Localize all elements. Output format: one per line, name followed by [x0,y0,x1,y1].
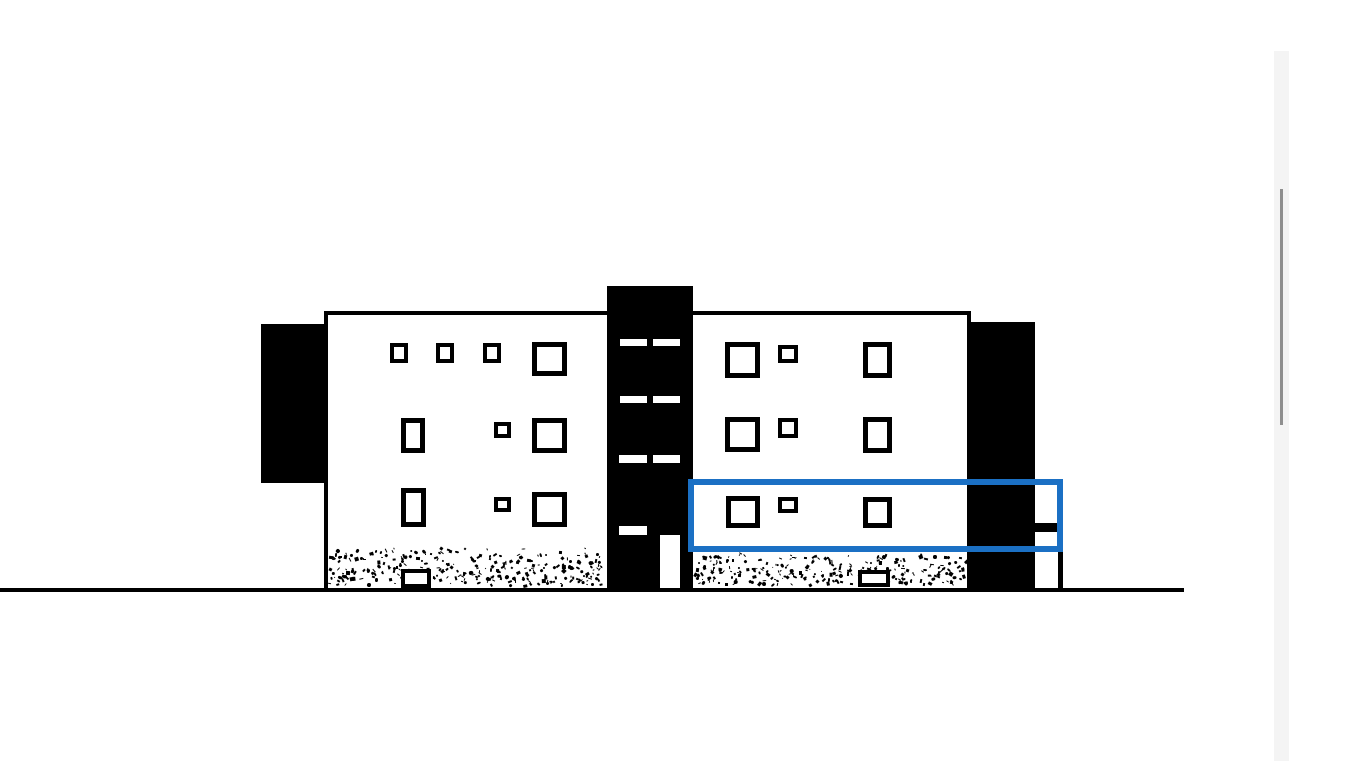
stipple-dot [488,558,490,560]
stipple-dot [708,581,710,583]
window [483,343,501,363]
stipple-dot [869,561,872,564]
stipple-dot [584,547,587,550]
window [778,345,798,363]
stipple-dot [430,552,432,555]
stipple-dot [743,554,746,557]
stipple-dot [709,555,712,558]
stipple-dot [591,583,594,586]
stipple-dot [389,578,393,581]
stipple-dot [762,582,766,586]
stipple-dot [440,551,443,554]
stipple-dot [696,567,699,571]
stipple-dot [561,556,565,560]
stipple-dot [490,564,494,568]
stipple-dot [814,573,816,575]
stipple-dot [464,581,467,584]
stipple-dot [355,557,359,561]
stipple-dot [900,560,902,562]
stipple-dot [598,556,600,558]
stipple-dot [436,575,439,578]
stipple-dot [392,550,395,553]
stipple-dot [478,554,481,557]
stipple-dot [446,576,449,579]
stipple-dot [485,567,486,569]
window [401,569,431,588]
stipple-dot [927,575,931,577]
stipple-dot [409,554,413,558]
stipple-dot [906,569,910,573]
stipple-dot [894,560,898,564]
stipple-dot [833,571,836,575]
window [494,422,511,438]
stipple-dot [931,577,936,581]
stipple-dot [564,576,568,581]
shaft-opening [653,339,680,346]
window [494,497,511,512]
stipple-dot [447,562,450,565]
stipple-dot [752,575,757,579]
stipple-dot [493,553,498,557]
stipple-dot [765,572,770,577]
stipple-dot [829,572,832,576]
stipple-dot [336,584,339,586]
stipple-dot [377,561,380,565]
stipple-dot [771,583,775,587]
building-elevation-drawing [0,0,1353,761]
stipple-dot [328,582,331,584]
stipple-dot [410,550,413,553]
stipple-dot [737,567,739,569]
stipple-dot [499,555,502,558]
stipple-dot [757,581,762,586]
stipple-dot [698,562,701,564]
stipple-dot [822,578,826,582]
stipple-dot [495,568,496,571]
drawing-viewport [0,0,1353,761]
stipple-dot [454,550,458,552]
stipple-dot [522,549,526,550]
stipple-dot [592,572,594,574]
stipple-dot [942,581,944,583]
stipple-dot [779,574,781,576]
stipple-dot [560,583,562,584]
stipple-dot [965,560,970,565]
stipple-dot [840,580,843,583]
stipple-dot [511,566,514,569]
stipple-dot [477,581,481,584]
stipple-dot [910,581,912,583]
stipple-dot [375,578,378,582]
stipple-dot [718,582,720,584]
stipple-dot [515,580,516,583]
stipple-dot [516,571,521,575]
stipple-dot [774,579,776,581]
stipple-dot [595,553,598,556]
stipple-dot [847,555,849,557]
stipple-dot [566,557,567,560]
stipple-dot [385,548,388,552]
stipple-dot [450,583,452,585]
stipple-dot [420,559,423,562]
stipple-dot [381,557,383,559]
stipple-dot [923,583,925,586]
stipple-dot [569,559,572,563]
stipple-dot [561,568,566,573]
vertical-scrollbar-thumb[interactable] [1280,189,1283,425]
stipple-dot [924,558,928,561]
stipple-dot [902,565,905,568]
stipple-dot [561,584,563,587]
stipple-dot [367,583,372,588]
stipple-dot [786,575,790,579]
stipple-dot [533,571,536,574]
stipple-dot [772,566,774,568]
stipple-band-left [328,547,605,588]
stipple-dot [713,566,716,569]
stipple-dot [904,582,906,584]
stipple-dot [537,555,539,557]
stipple-dot [356,548,361,553]
stipple-dot [424,562,428,565]
stipple-dot [460,581,462,583]
stipple-dot [709,560,711,562]
stipple-dot [777,583,779,586]
stipple-dot [576,566,580,569]
stipple-dot [745,568,749,572]
stipple-dot [779,563,784,568]
stipple-dot [523,584,527,587]
stipple-dot [473,560,475,563]
stipple-dot [588,577,592,579]
shaft-opening [619,526,647,535]
stipple-dot [846,572,848,576]
window [436,343,454,363]
stipple-dot [962,574,966,578]
stipple-dot [531,567,534,569]
stipple-dot [380,551,383,554]
stipple-dot [363,559,365,560]
window [858,570,890,587]
stipple-dot [592,569,594,571]
stipple-dot [332,572,335,575]
stipple-dot [545,554,548,557]
stipple-dot [738,574,741,577]
stipple-dot [713,576,716,579]
stipple-dot [849,563,852,566]
stipple-dot [360,578,364,580]
stipple-dot [352,576,356,580]
window [532,492,567,527]
shaft-opening [619,455,647,463]
shaft-opening [620,396,647,403]
stipple-dot [729,566,730,569]
stipple-dot [952,583,954,585]
stipple-dot [366,569,370,573]
stipple-dot [449,566,454,571]
stipple-dot [799,571,802,575]
stipple-dot [414,550,419,555]
stipple-dot [821,571,822,572]
stipple-dot [397,573,400,575]
stipple-dot [785,566,787,569]
window [390,343,408,363]
stipple-dot [375,550,378,554]
stipple-dot [343,555,346,559]
stipple-dot [952,576,956,580]
vertical-scrollbar-track[interactable] [1274,51,1289,761]
stipple-dot [384,553,388,557]
stipple-dot [903,558,906,562]
stair-shaft [607,286,693,588]
stipple-dot [804,557,807,559]
stipple-dot [398,564,402,568]
stipple-dot [758,559,762,562]
stipple-dot [334,553,336,557]
stipple-dot [590,565,593,568]
stipple-dot [733,582,737,585]
stipple-dot [719,562,722,564]
stipple-dot [490,583,493,586]
stipple-dot [906,581,909,584]
stipple-dot [946,556,950,560]
stipple-dot [527,558,531,561]
stipple-dot [436,567,440,568]
stipple-dot [349,558,352,562]
stipple-dot [937,566,940,569]
window [725,417,760,452]
stipple-dot [570,576,571,578]
stipple-dot [464,547,467,550]
stipple-dot [416,557,420,560]
stipple-dot [353,571,357,575]
stipple-dot [901,568,905,570]
stipple-dot [562,565,566,569]
stipple-dot [362,569,365,572]
stipple-dot [766,562,769,565]
stipple-dot [571,567,574,570]
stipple-dot [961,568,964,572]
stipple-dot [532,563,535,566]
stipple-dot [809,569,810,571]
stipple-dot [790,558,792,560]
stipple-dot [346,571,350,575]
stipple-dot [898,564,900,567]
stipple-dot [350,553,354,557]
stipple-dot [486,581,488,583]
stipple-dot [344,583,347,586]
stipple-dot [702,580,706,585]
window [863,417,892,453]
stipple-dot [779,557,782,559]
stipple-dot [597,564,599,567]
window [401,418,425,453]
stipple-dot [334,577,336,579]
stipple-dot [947,562,951,566]
ground-line [0,588,1184,592]
stipple-dot [553,580,556,583]
stipple-dot [794,557,796,559]
stipple-dot [731,576,733,579]
stipple-dot [585,554,589,558]
window [401,488,426,527]
stipple-dot [337,559,341,563]
stipple-dot [831,560,833,564]
stipple-dot [490,568,492,572]
stipple-dot [504,575,509,580]
stipple-dot [394,583,396,584]
stipple-dot [425,554,426,555]
shaft-opening [660,535,680,588]
stipple-dot [581,581,584,584]
stipple-dot [494,560,498,564]
stipple-dot [572,579,574,581]
stipple-dot [329,567,333,571]
stipple-dot [831,564,834,567]
stipple-dot [833,567,837,570]
stipple-dot [360,557,363,560]
stipple-dot [793,575,795,578]
stipple-dot [403,563,407,567]
stipple-dot [556,564,560,568]
window [532,418,567,453]
shaft-opening [653,455,680,463]
stipple-dot [393,558,396,560]
stipple-dot [828,578,829,580]
stipple-dot [933,555,937,559]
stipple-dot [330,577,333,580]
stipple-dot [728,556,730,559]
stipple-dot [439,579,443,583]
window [532,342,567,376]
stipple-dot [815,579,819,583]
stipple-dot [805,570,809,572]
stipple-dot [824,557,828,561]
left-annex-block [261,324,327,483]
stipple-dot [539,553,542,557]
stipple-dot [376,564,381,569]
stipple-dot [476,578,478,580]
stipple-dot [537,582,541,586]
right-post [1058,552,1063,588]
stipple-dot [865,561,868,564]
stipple-dot [809,583,813,587]
stipple-dot [927,581,932,586]
stipple-dot [576,560,581,564]
stipple-dot [559,551,562,554]
stipple-dot [776,563,778,565]
stipple-dot [454,576,457,580]
stipple-dot [803,578,807,581]
stipple-dot [554,576,557,580]
stipple-dot [851,573,854,576]
stipple-dot [713,564,715,566]
stipple-dot [786,564,789,567]
stipple-dot [751,580,755,584]
stipple-dot [443,571,445,572]
stipple-dot [599,584,603,587]
stipple-dot [725,583,728,586]
selection-rectangle[interactable] [688,479,1063,552]
stipple-dot [850,583,853,585]
stipple-dot [526,573,529,576]
stipple-dot [448,550,452,554]
stipple-dot [544,562,548,566]
window [863,342,892,378]
window [778,418,798,438]
stipple-dot [586,580,588,582]
stipple-dot [585,583,588,585]
stipple-dot [894,569,896,571]
stipple-dot [525,567,528,569]
stipple-dot [732,559,734,562]
shaft-opening [653,396,680,403]
stipple-dot [577,555,580,557]
stipple-dot [456,569,459,572]
stipple-dot [790,583,793,586]
stipple-dot [486,548,488,551]
stipple-dot [539,569,543,573]
stipple-dot [959,557,962,559]
stipple-dot [596,574,600,577]
stipple-dot [756,568,757,569]
stipple-dot [758,571,761,575]
stipple-dot [782,578,784,580]
stipple-dot [813,576,815,579]
stipple-dot [730,571,732,573]
stipple-dot [879,561,881,563]
stipple-dot [894,578,897,581]
stipple-dot [743,559,747,563]
stipple-dot [337,567,340,571]
stipple-dot [393,547,395,549]
stipple-dot [452,563,454,565]
stipple-dot [382,561,385,564]
stipple-dot [780,570,782,572]
stipple-dot [504,568,506,570]
stipple-dot [838,573,843,578]
stipple-dot [579,570,583,574]
stipple-dot [817,557,820,560]
stipple-dot [381,571,385,575]
stipple-dot [919,579,921,583]
stipple-dot [537,564,539,565]
stipple-dot [442,560,445,563]
stipple-dot [954,561,958,565]
stipple-dot [826,581,830,586]
stipple-dot [492,580,496,583]
shaft-opening [620,339,647,346]
stipple-dot [479,570,481,573]
stipple-band-right [694,553,970,588]
stipple-dot [734,573,736,575]
window [725,342,760,378]
